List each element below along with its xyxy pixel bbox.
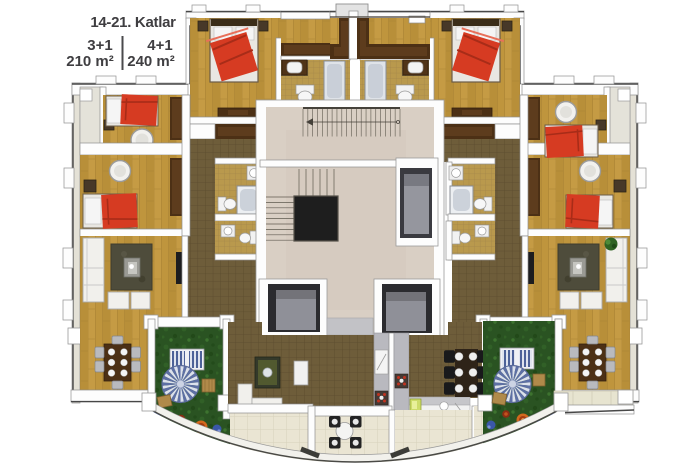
svg-text:210 m²: 210 m² (66, 53, 114, 70)
svg-text:4+1: 4+1 (147, 37, 172, 54)
svg-text:240 m²: 240 m² (127, 53, 175, 70)
svg-text:14-21. Katlar: 14-21. Katlar (90, 14, 176, 31)
svg-text:3+1: 3+1 (87, 37, 112, 54)
